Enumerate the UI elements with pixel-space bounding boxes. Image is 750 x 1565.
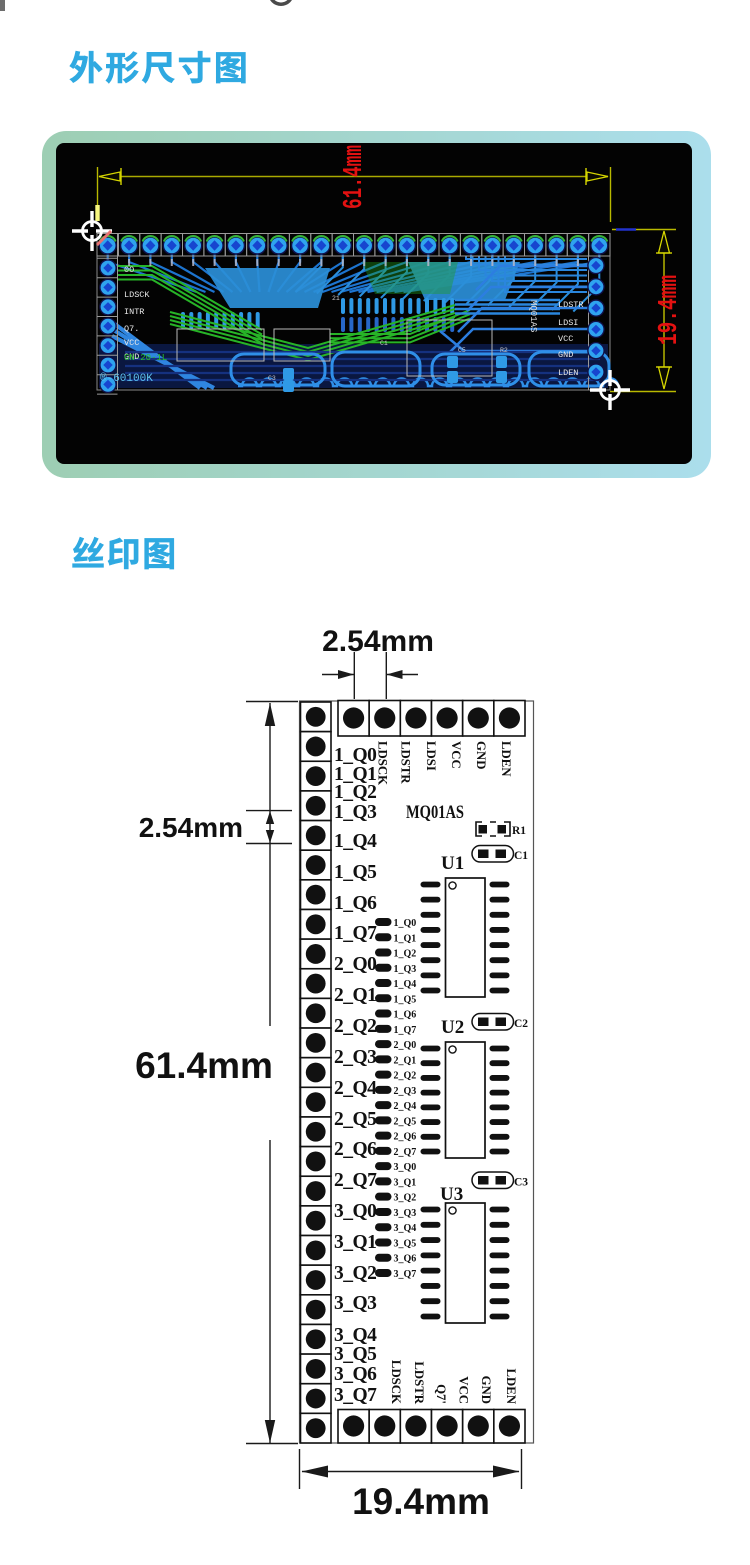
svg-text:1_Q7: 1_Q7: [334, 923, 377, 944]
svg-text:1_Q1: 1_Q1: [394, 933, 417, 944]
svg-text:LDSI: LDSI: [424, 741, 438, 771]
svg-text:1_Q5: 1_Q5: [394, 994, 417, 1005]
svg-text:C3: C3: [514, 1177, 528, 1189]
svg-text:61.4mm: 61.4mm: [340, 145, 370, 209]
svg-text:2_Q7: 2_Q7: [334, 1170, 377, 1191]
svg-text:2_Q1: 2_Q1: [334, 985, 376, 1006]
svg-text:LDSCK: LDSCK: [124, 290, 150, 300]
svg-text:2_Q4: 2_Q4: [334, 1078, 377, 1099]
svg-text:Q7.: Q7.: [124, 324, 139, 334]
svg-text:Q7': Q7': [434, 1384, 448, 1404]
svg-text:1_Q6: 1_Q6: [394, 1010, 417, 1021]
svg-text:R1: R1: [512, 825, 526, 837]
svg-text:3_Q5: 3_Q5: [334, 1344, 377, 1365]
svg-text:GND: GND: [474, 741, 488, 769]
svg-text:3_Q6: 3_Q6: [394, 1254, 417, 1265]
svg-text:2_Q0: 2_Q0: [394, 1040, 417, 1051]
svg-text:INTR: INTR: [124, 307, 144, 317]
svg-text:1_Q4: 1_Q4: [334, 831, 377, 852]
svg-text:C3: C3: [268, 375, 276, 382]
svg-text:GND: GND: [479, 1376, 493, 1404]
svg-text:U2: U2: [441, 1017, 464, 1038]
svg-text:LDSTR: LDSTR: [399, 741, 413, 784]
svg-text:C1: C1: [380, 340, 388, 347]
svg-text:C1: C1: [514, 850, 528, 862]
svg-text:2_Q4: 2_Q4: [394, 1101, 417, 1112]
svg-text:3_Q4: 3_Q4: [334, 1325, 377, 1346]
svg-text:2_Q2: 2_Q2: [334, 1016, 376, 1037]
svg-text:VCC: VCC: [558, 334, 573, 344]
svg-text:LDSCK: LDSCK: [389, 1360, 403, 1404]
svg-text:LDSI: LDSI: [558, 318, 578, 328]
svg-text:VCC: VCC: [457, 1376, 471, 1404]
svg-text:1_Q0: 1_Q0: [334, 745, 376, 766]
svg-text:1_Q2: 1_Q2: [394, 949, 417, 960]
svg-text:1_Q7: 1_Q7: [394, 1025, 417, 1036]
svg-text:C5: C5: [458, 347, 466, 354]
svg-text:0O: 0O: [124, 265, 134, 275]
svg-text:21: 21: [332, 295, 340, 302]
svg-text:3_Q2: 3_Q2: [334, 1263, 376, 1284]
svg-text:3_Q3: 3_Q3: [394, 1208, 417, 1219]
svg-text:2_Q1: 2_Q1: [394, 1055, 417, 1066]
svg-text:1_Q2: 1_Q2: [334, 782, 376, 803]
svg-text:MQ01AS: MQ01AS: [528, 300, 538, 332]
svg-text:2_Q5: 2_Q5: [394, 1116, 417, 1127]
svg-text:3_Q7: 3_Q7: [334, 1385, 377, 1406]
svg-text:2_Q5: 2_Q5: [334, 1109, 377, 1130]
svg-text:3_Q3: 3_Q3: [334, 1293, 377, 1314]
svg-text:2_Q2: 2_Q2: [394, 1071, 417, 1082]
svg-text:U3: U3: [440, 1184, 463, 1205]
svg-text:2.54mm: 2.54mm: [322, 625, 434, 658]
svg-text:LDEN: LDEN: [499, 741, 513, 777]
svg-text:LDEN: LDEN: [504, 1368, 518, 1404]
svg-text:U1: U1: [441, 853, 464, 874]
svg-text:2.54mm: 2.54mm: [139, 812, 243, 843]
svg-text:3_Q7: 3_Q7: [394, 1269, 417, 1280]
svg-text:3_Q5: 3_Q5: [394, 1239, 417, 1250]
svg-text:C2: C2: [514, 1018, 528, 1030]
svg-text:LDSCK: LDSCK: [376, 741, 390, 785]
svg-text:2_Q3: 2_Q3: [334, 1047, 377, 1068]
svg-text:3_Q0: 3_Q0: [394, 1162, 417, 1173]
svg-text:19.4mm: 19.4mm: [655, 275, 685, 345]
svg-text:GN-20-1L: GN-20-1L: [124, 353, 167, 363]
svg-text:LDSTR: LDSTR: [412, 1361, 426, 1404]
svg-text:3_Q4: 3_Q4: [394, 1223, 417, 1234]
svg-text:3_Q0: 3_Q0: [334, 1201, 376, 1222]
svg-text:2_Q6: 2_Q6: [334, 1139, 377, 1160]
svg-text:3_Q6: 3_Q6: [334, 1364, 377, 1385]
svg-text:61.4mm: 61.4mm: [135, 1045, 273, 1086]
svg-text:®-60100K: ®-60100K: [100, 373, 153, 385]
svg-text:LDSTR: LDSTR: [558, 300, 584, 310]
svg-text:3_Q1: 3_Q1: [334, 1232, 376, 1253]
svg-text:1_Q4: 1_Q4: [394, 979, 417, 990]
svg-text:2_Q6: 2_Q6: [394, 1132, 417, 1143]
svg-text:1_Q3: 1_Q3: [394, 964, 417, 975]
svg-text:2_Q7: 2_Q7: [394, 1147, 417, 1158]
svg-text:3_Q2: 3_Q2: [394, 1193, 417, 1204]
svg-text:1_Q6: 1_Q6: [334, 893, 377, 914]
svg-text:VCC: VCC: [449, 741, 463, 769]
svg-text:GND: GND: [558, 350, 573, 360]
svg-text:LDEN: LDEN: [558, 368, 578, 378]
svg-text:19.4mm: 19.4mm: [352, 1481, 490, 1522]
svg-text:1_Q3: 1_Q3: [334, 802, 377, 823]
svg-text:3_Q1: 3_Q1: [394, 1177, 417, 1188]
svg-text:2_Q0: 2_Q0: [334, 954, 376, 975]
svg-text:2_Q3: 2_Q3: [394, 1086, 417, 1097]
svg-text:1_Q0: 1_Q0: [394, 918, 417, 929]
svg-text:VCC: VCC: [124, 338, 139, 348]
svg-text:1_Q5: 1_Q5: [334, 862, 377, 883]
svg-text:R2: R2: [500, 347, 508, 354]
svg-text:MQ01AS: MQ01AS: [406, 802, 464, 823]
